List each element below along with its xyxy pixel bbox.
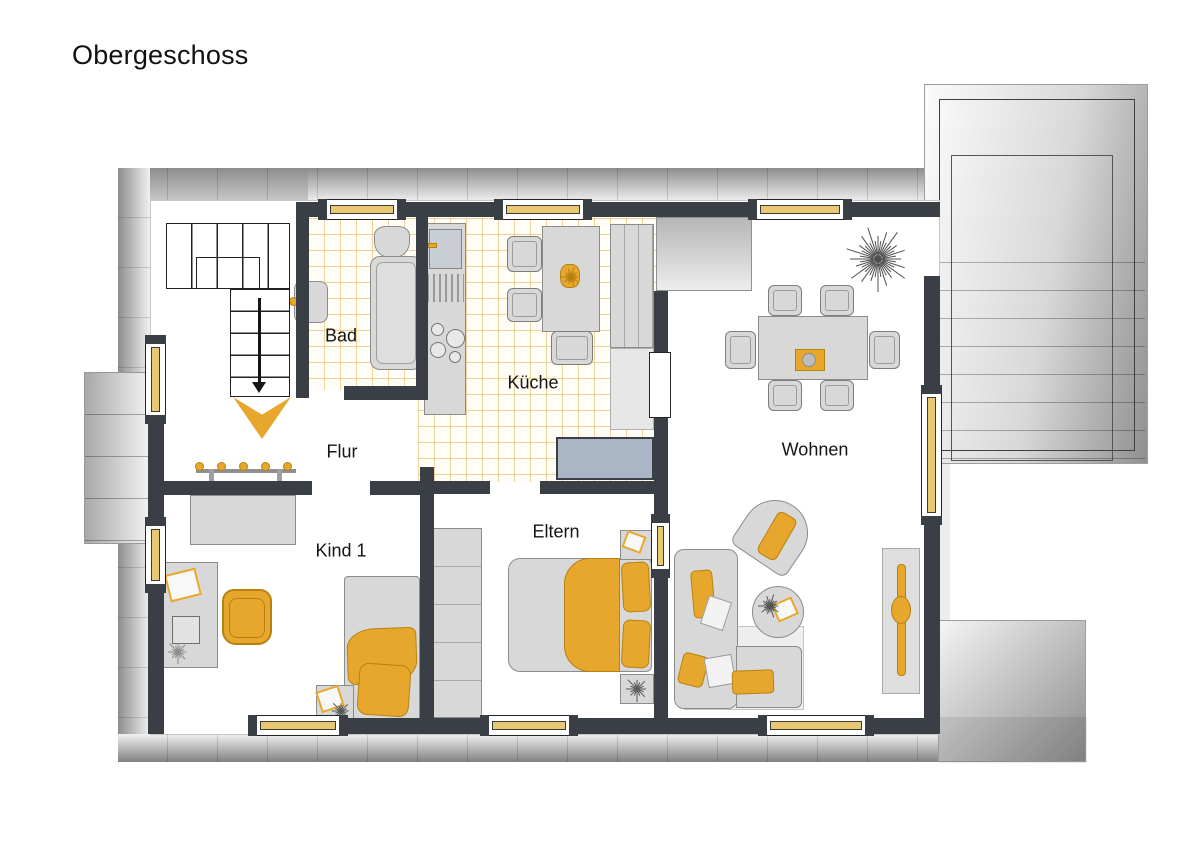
floor-plan: Bad Küche Flur Wohnen Kind 1 Eltern (0, 0, 1200, 844)
sofa-seat-pad (732, 669, 775, 694)
wall-exterior-bottom (348, 718, 480, 734)
cooktop-burner (449, 351, 461, 363)
wall-bath-left (296, 217, 309, 398)
window (248, 715, 348, 736)
interior-window (651, 514, 670, 578)
window (480, 715, 578, 736)
wall-corridor-kids (164, 481, 312, 495)
dining-chair (725, 331, 756, 369)
cooktop-burner (446, 329, 465, 348)
window (758, 715, 874, 736)
wall-exterior-top (296, 202, 318, 217)
dining-chair (768, 380, 802, 411)
kitchen-chair (507, 288, 542, 322)
nightstand-plant-icon (624, 676, 650, 702)
wall-exterior-bottom (578, 718, 758, 734)
room-label-kueche: Küche (507, 373, 558, 394)
cooktop-burner (430, 342, 446, 358)
bed-pillow (621, 619, 651, 668)
hall-bench (190, 495, 296, 545)
bed-pillow (621, 561, 652, 612)
stairs-direction-line (258, 298, 261, 384)
window (494, 199, 592, 220)
room-label-eltern: Eltern (532, 522, 579, 543)
cooktop-burner (431, 323, 444, 336)
wardrobe (430, 528, 482, 718)
window (748, 199, 852, 220)
dining-chair (820, 380, 854, 411)
dining-chair (768, 285, 802, 316)
coat-hook-icon (261, 462, 270, 471)
kids-bed-pillow (356, 662, 412, 718)
window (318, 199, 406, 220)
sideboard-decor-vase (891, 596, 911, 624)
room-label-bad: Bad (325, 326, 357, 347)
window (921, 385, 942, 525)
kitchen-chair (507, 236, 542, 272)
room-label-flur: Flur (327, 442, 358, 463)
wall-exterior-top (406, 202, 494, 217)
centerpiece-bowl (802, 353, 816, 367)
wall-bath-bottom (344, 386, 428, 400)
kitchen-chair (551, 331, 593, 365)
dish-rack-icon (427, 274, 464, 302)
coat-hook-icon (239, 462, 248, 471)
wall-bath-kitchen (416, 217, 428, 388)
double-bed-duvet (564, 558, 620, 672)
stairs-direction-arrowhead-icon (252, 382, 266, 393)
roof-plank-lines (929, 235, 1145, 461)
wall-parents-top (540, 481, 656, 494)
coat-hook-icon (283, 462, 292, 471)
wall-kids-parents (420, 481, 434, 718)
wall-exterior-left (148, 593, 164, 734)
wall-exterior-bottom (874, 718, 940, 734)
bathtub-basin (376, 262, 416, 364)
toilet-icon (374, 226, 410, 258)
roof-void-area (656, 217, 752, 291)
roof-structure-northeast (924, 84, 1148, 464)
table-flowers-icon (560, 264, 580, 288)
large-plant-icon (844, 226, 912, 292)
wall-parents-top (434, 481, 490, 494)
wall-parents-living (654, 481, 668, 514)
wall-exterior-right (924, 525, 940, 734)
coat-hook-icon (195, 462, 204, 471)
coffee-table-plant-icon (758, 594, 782, 618)
room-label-kind1: Kind 1 (315, 541, 366, 562)
floor-plan-page: Obergeschoss (0, 0, 1200, 844)
coat-hook-icon (217, 462, 226, 471)
wall-exterior-left (148, 424, 164, 517)
wall-exterior-top (592, 202, 748, 217)
dining-chair (869, 331, 900, 369)
window (145, 335, 166, 424)
wall-kitchen-living (654, 291, 668, 352)
kitchen-cabinet-extension (610, 348, 654, 430)
bathtub (370, 256, 422, 370)
desk-plant-icon (166, 640, 190, 664)
roof-wing-west (84, 372, 150, 544)
roof-overhang-bottom (118, 734, 950, 762)
stairs-landing (196, 257, 260, 289)
roof-corner-southeast (938, 620, 1086, 762)
window (145, 517, 166, 593)
kitchen-sink (429, 229, 462, 269)
room-label-wohnen: Wohnen (782, 440, 849, 461)
kids-desk-chair (222, 589, 272, 645)
wall-kitchen-living (654, 418, 668, 482)
kitchen-tall-cabinet (610, 224, 654, 348)
hall-sideboard-blue (556, 437, 654, 480)
dining-table-centerpiece (795, 349, 825, 371)
door-kitchen-living (649, 352, 671, 418)
wall-parents-living (654, 578, 668, 718)
wall-exterior-right (924, 276, 940, 385)
roof-corner-step (939, 717, 1087, 763)
chair-seat-line (229, 598, 265, 638)
wall-exterior-top (852, 202, 940, 217)
